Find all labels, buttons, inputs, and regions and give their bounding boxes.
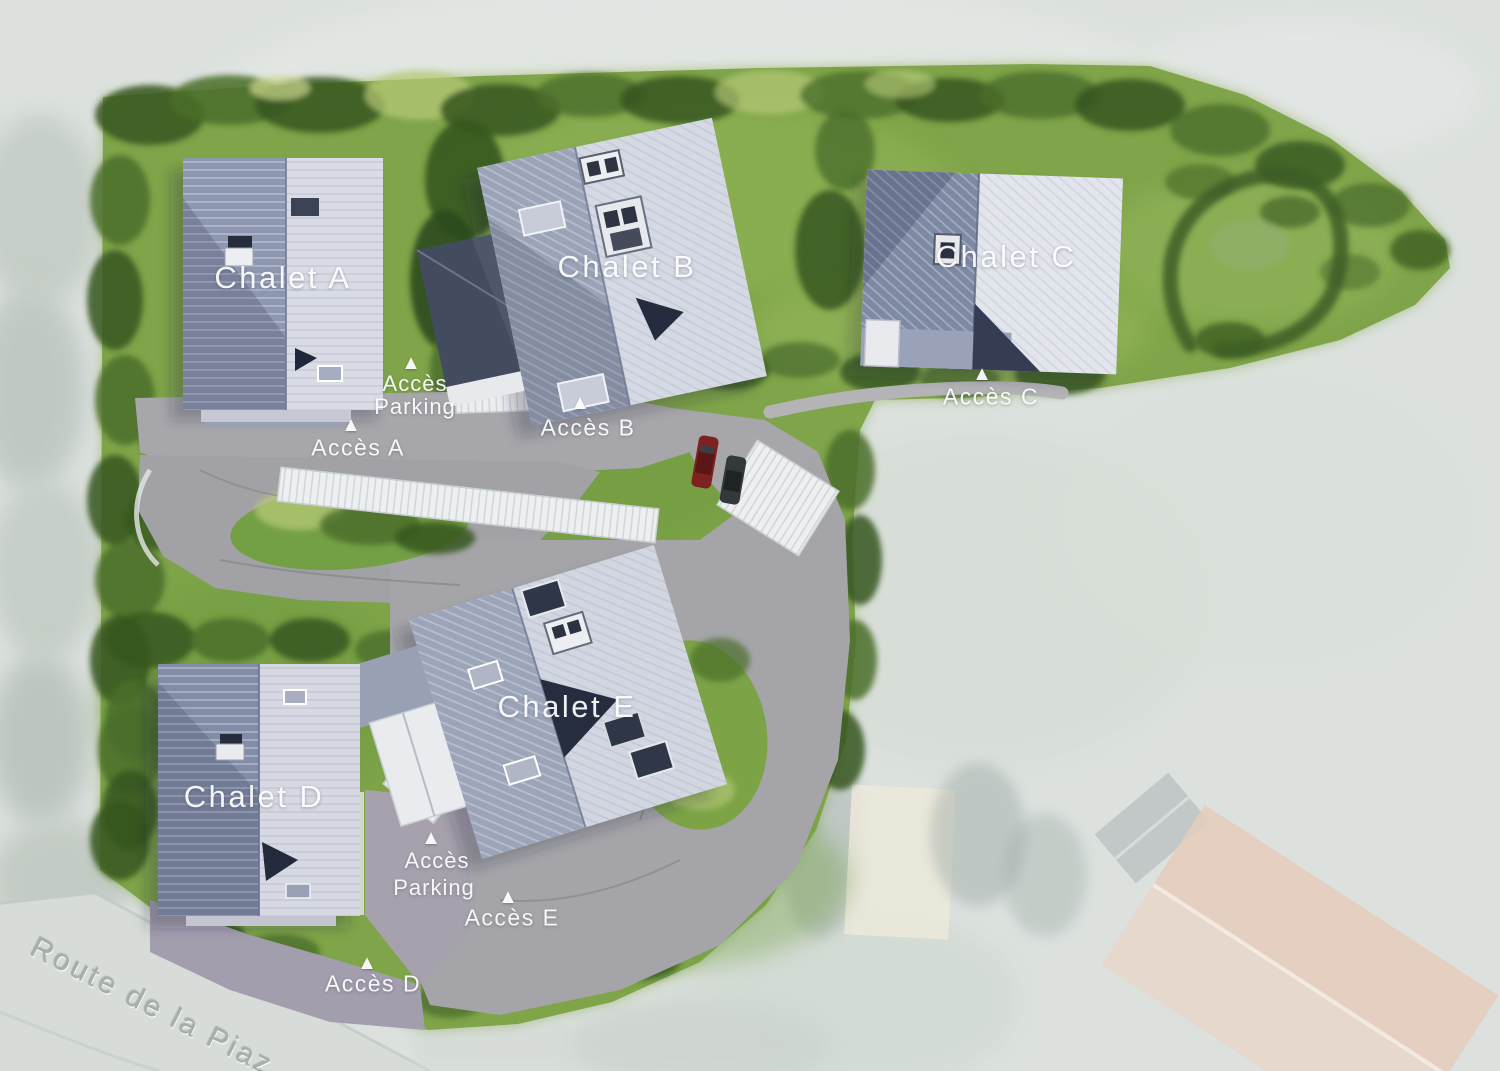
chalet-d-roof (158, 664, 360, 926)
acces-c-marker-icon: ▲ (972, 364, 992, 384)
acces-e-marker-icon: ▲ (498, 887, 518, 907)
acces-parking-d-marker-icon: ▲ (421, 828, 441, 848)
chalet-a-roof (183, 158, 383, 428)
acces-a-marker-icon: ▲ (341, 415, 361, 435)
acces-d-marker-icon: ▲ (357, 953, 377, 973)
chalet-c-roof (860, 170, 1123, 375)
acces-parking-a-marker-icon: ▲ (401, 353, 421, 373)
site-plan-canvas: Chalet A Chalet B Chalet C Chalet E Chal… (0, 0, 1500, 1071)
aerial-site-plan (0, 0, 1500, 1071)
acces-b-marker-icon: ▲ (570, 393, 590, 413)
